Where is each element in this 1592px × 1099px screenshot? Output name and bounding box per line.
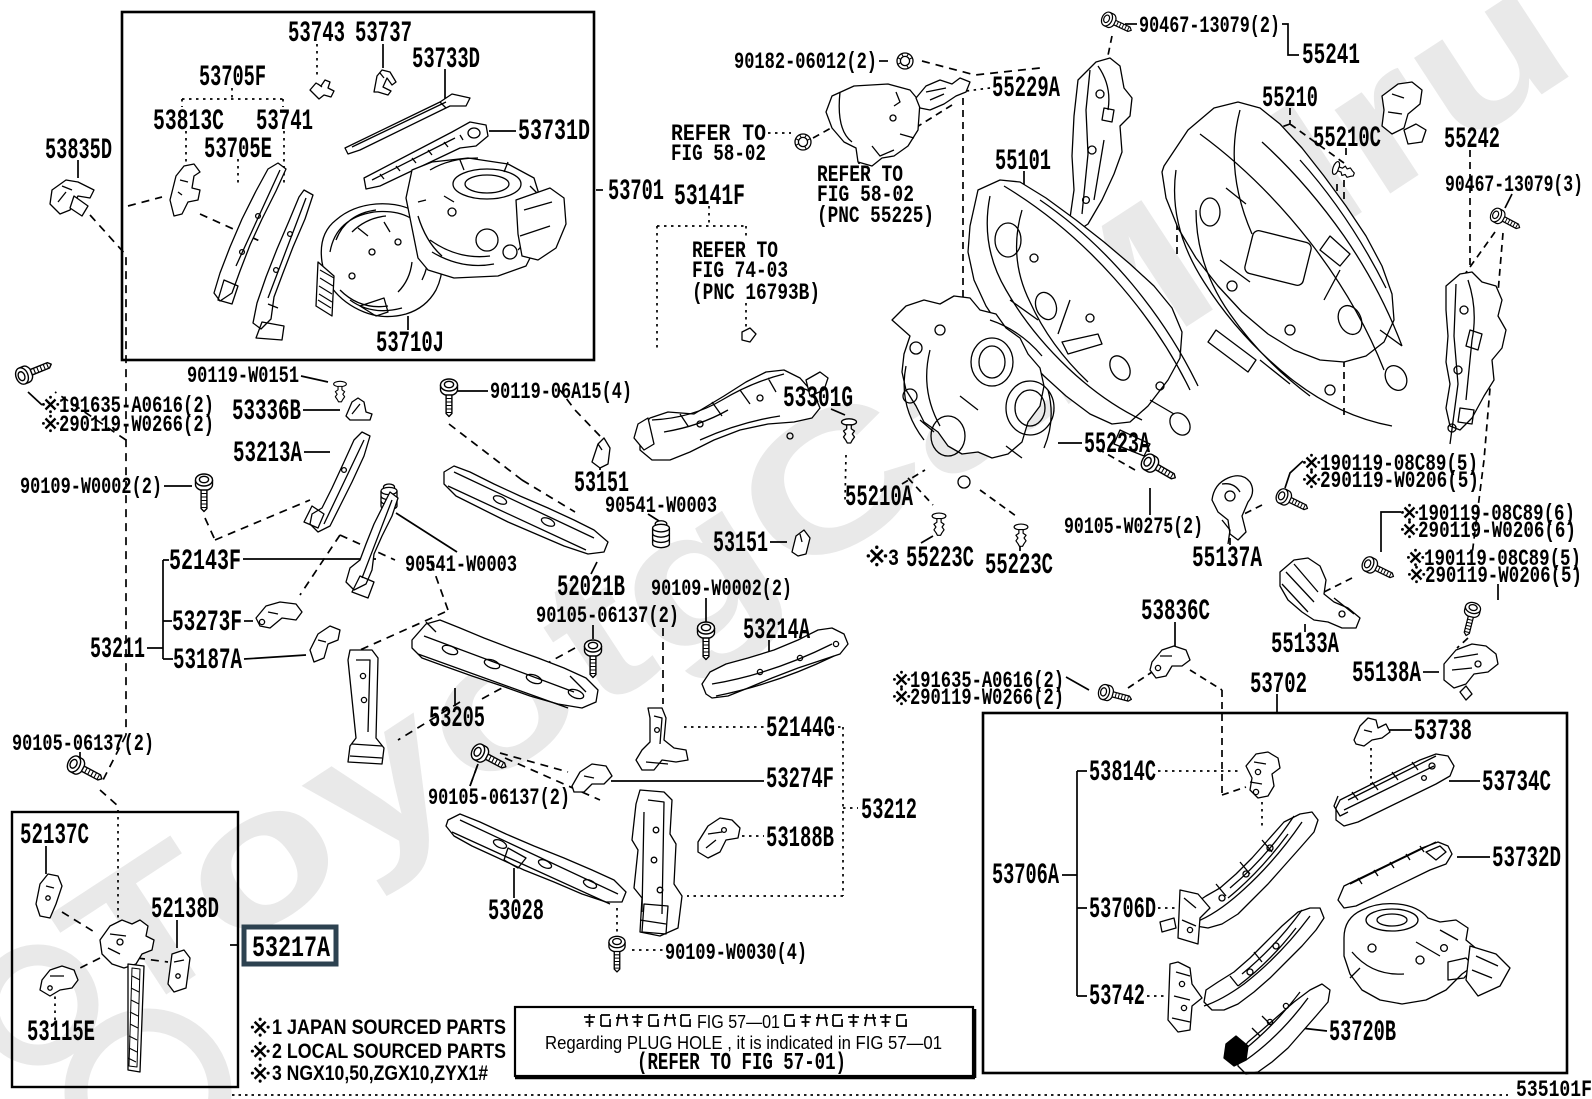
svg-text:53705E: 53705E [204,132,272,166]
svg-text:53211: 53211 [90,632,145,666]
svg-text:53706D: 53706D [1089,892,1156,926]
svg-text:290119-W0266(2): 290119-W0266(2) [910,685,1064,711]
svg-text:52144G: 52144G [766,711,835,745]
svg-text:52143F: 52143F [169,544,241,578]
svg-text:90467-13079(3): 90467-13079(3) [1445,172,1583,198]
svg-text:55137A: 55137A [1192,541,1262,575]
svg-text:53028: 53028 [488,894,544,928]
svg-text:52138D: 52138D [151,892,219,926]
svg-text:90109-W0030(4): 90109-W0030(4) [665,940,807,966]
svg-text:53212: 53212 [861,793,917,827]
svg-text:1 JAPAN SOURCED PARTS: 1 JAPAN SOURCED PARTS [272,1016,506,1039]
svg-text:290119-W0266(2): 290119-W0266(2) [59,412,214,438]
svg-text:55210A: 55210A [845,480,913,514]
svg-text:3: 3 [888,546,899,572]
svg-text:53205: 53205 [429,701,485,735]
svg-text:290119-W0206(5): 290119-W0206(5) [1320,468,1479,494]
svg-text:53710J: 53710J [376,326,444,360]
svg-text:53705F: 53705F [199,60,266,94]
svg-text:55223C: 55223C [906,541,974,575]
svg-text:53188B: 53188B [766,821,834,855]
svg-text:53274F: 53274F [766,762,834,796]
svg-text:90467-13079(2): 90467-13079(2) [1139,13,1280,39]
svg-text:53737: 53737 [355,16,412,50]
svg-text:53187A: 53187A [173,643,242,677]
svg-text:55210: 55210 [1262,81,1318,115]
svg-text:53701: 53701 [608,174,664,208]
svg-text:90541-W0003: 90541-W0003 [605,493,717,519]
svg-text:53336B: 53336B [232,394,301,428]
svg-text:53738: 53738 [1414,714,1472,748]
svg-text:53743: 53743 [288,16,345,50]
svg-text:53214A: 53214A [743,613,810,647]
svg-text:90182-06012(2): 90182-06012(2) [734,49,877,75]
svg-text:55210C: 55210C [1313,121,1381,155]
svg-text:90105-06137(2): 90105-06137(2) [536,603,679,629]
svg-text:53814C: 53814C [1089,755,1156,789]
svg-text:52021B: 52021B [557,570,625,604]
svg-text:53702: 53702 [1250,667,1307,701]
svg-text:90541-W0003: 90541-W0003 [405,552,517,578]
svg-text:53115E: 53115E [27,1015,95,1049]
svg-text:55133A: 55133A [1271,627,1339,661]
svg-text:90119-06A15(4): 90119-06A15(4) [490,379,632,405]
svg-text:55242: 55242 [1444,122,1500,156]
svg-text:53273F: 53273F [172,605,242,639]
svg-text:90109-W0002(2): 90109-W0002(2) [651,576,792,602]
svg-text:53213A: 53213A [233,436,302,470]
svg-text:53151: 53151 [713,526,768,560]
svg-text:2 LOCAL SOURCED PARTS: 2 LOCAL SOURCED PARTS [272,1040,506,1063]
svg-text:53720B: 53720B [1329,1015,1396,1049]
svg-text:90105-06137(2): 90105-06137(2) [428,785,570,811]
svg-text:FIG 57—01: FIG 57—01 [697,1011,780,1032]
svg-text:53734C: 53734C [1482,765,1551,799]
svg-text:53836C: 53836C [1141,594,1210,628]
svg-text:55223C: 55223C [985,548,1053,582]
svg-text:55101: 55101 [995,144,1051,178]
svg-text:90119-W0151: 90119-W0151 [187,363,299,389]
svg-text:90105-W0275(2): 90105-W0275(2) [1064,514,1203,540]
svg-text:53731D: 53731D [518,114,590,148]
svg-text:55229A: 55229A [992,71,1060,105]
svg-text:290119-W0206(5): 290119-W0206(5) [1425,563,1582,589]
svg-text:53742: 53742 [1089,979,1145,1013]
svg-text:(REFER TO FIG 57-01): (REFER TO FIG 57-01) [637,1050,846,1077]
svg-text:53301G: 53301G [783,381,853,415]
svg-text:53733D: 53733D [412,42,480,76]
svg-text:535101F: 535101F [1516,1077,1592,1099]
svg-text:53217A: 53217A [252,931,330,965]
svg-text:90109-W0002(2): 90109-W0002(2) [20,474,162,500]
svg-text:FIG 58-02: FIG 58-02 [671,141,766,167]
svg-text:(PNC 55225): (PNC 55225) [817,203,934,229]
svg-text:3 NGX10,50,ZGX10,ZYX1#: 3 NGX10,50,ZGX10,ZYX1# [272,1062,488,1085]
svg-text:55223A: 55223A [1084,427,1150,461]
svg-text:52137C: 52137C [20,818,89,852]
svg-text:53141F: 53141F [674,179,745,213]
svg-text:(PNC 16793B): (PNC 16793B) [692,280,820,306]
svg-text:55138A: 55138A [1352,656,1421,690]
svg-text:290119-W0206(6): 290119-W0206(6) [1418,518,1576,544]
svg-text:53732D: 53732D [1492,841,1561,875]
svg-text:53706A: 53706A [992,858,1059,892]
svg-text:55241: 55241 [1302,38,1360,72]
svg-text:90105-06137(2): 90105-06137(2) [12,731,154,757]
svg-text:53835D: 53835D [45,133,112,167]
